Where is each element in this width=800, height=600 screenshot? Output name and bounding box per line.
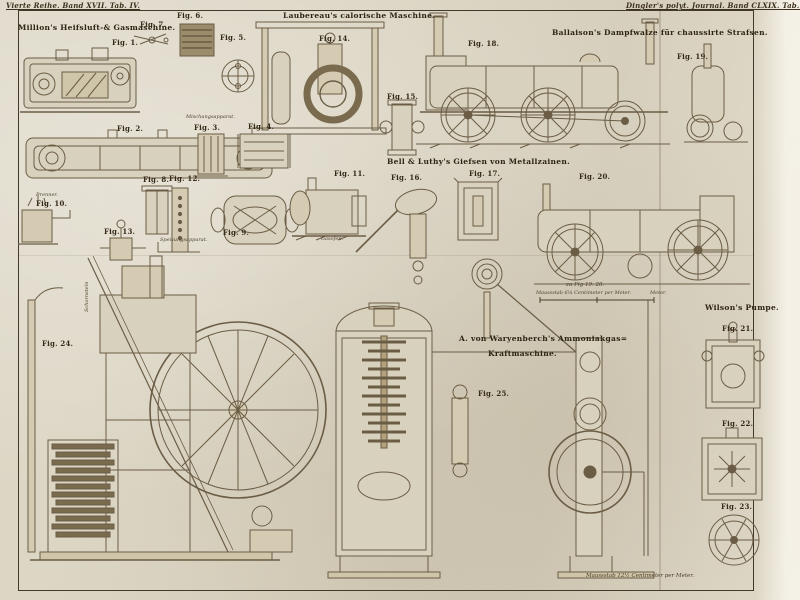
fig2-engine-section-drawing [26,130,272,178]
figure-label-20: Fig. 20. [579,172,610,181]
title-ammonia-line2: Kraftmaschine. [488,349,557,358]
figure-label-8: Fig. 8. [143,175,169,184]
caption-meter-label: Meter. [650,290,666,296]
figure-label-24: Fig. 24. [42,339,73,348]
caption-scale-bottom: Maassstab 12½ Centimeter per Meter. [586,573,694,579]
figure-label-10: Fig. 10. [36,199,67,208]
fig16-casting-ladle-drawing [356,185,439,284]
figure-label-9: Fig. 9. [223,228,249,237]
caption-scale-small: Maassstab 6¼ Centimeter per Meter. [536,290,631,296]
scale-bar-fig19-20 [540,297,654,303]
fig25-ammonia-machine-drawing [328,259,654,578]
figure-label-21: Fig. 21. [722,324,753,333]
title-bell: Bell & Luthy's Giefsen von Metallzainen. [387,157,570,166]
fig20-road-roller-drawing [534,184,750,284]
fig21-wilson-pump-drawing [702,322,764,408]
fig1-gas-engine-drawing [20,48,140,112]
figure-label-18: Fig. 18. [468,39,499,48]
fig8-vertical-device-drawing [142,186,172,234]
figure-label-16: Fig. 16. [391,173,422,182]
figure-label-2: Fig. 2. [117,124,143,133]
figure-label-15: Fig. 15. [387,92,418,101]
engraving-plate: Vierte Reihe. Band XVII. Tab. IV. Dingle… [0,0,800,600]
figure-label-14: Fig. 14. [319,34,350,43]
figure-label-7: Fig. 7. [140,20,166,29]
fig3-mixing-apparatus-drawing [194,134,228,176]
fig24-flywheel-engine-drawing [28,256,326,560]
figure-label-1: Fig. 1. [112,38,138,47]
title-ballaison: Ballaison's Dampfwalze für chaussirte St… [552,28,768,37]
figure-label-6: Fig. 6. [177,11,203,20]
figure-label-22: Fig. 22. [722,419,753,428]
fig5-gauge-drawing [222,60,254,92]
fig17-mould-box-drawing [454,178,502,240]
figure-label-23: Fig. 23. [721,502,752,511]
caption-schornstein: Schornstein [84,282,90,312]
title-wilson: Wilson's Pumpe. [705,303,779,312]
figure-label-11: Fig. 11. [334,169,365,178]
caption-zu-fig-19-20: zu Fig 19. 20. [566,282,604,288]
machine-drawings [0,0,800,600]
caption-speisungsapparat: Speisungsapparat. [160,237,207,243]
figure-label-5: Fig. 5. [220,33,246,42]
figure-label-4: Fig. 4. [248,122,274,131]
fig11-gas-furnace-drawing [290,178,366,240]
fig7-linkage-drawing [134,34,168,44]
figure-label-13: Fig. 13. [104,227,135,236]
fig23-rotor-drawing [709,515,759,565]
fig15-valve-column-drawing [380,100,424,155]
figure-label-19: Fig. 19. [677,52,708,61]
fig6-valve-block-drawing [180,24,214,56]
caption-gasofen: Gasofen. [321,236,343,242]
fig22-fan-chamber-drawing [702,428,762,500]
fig13-valve-drawing [100,220,146,260]
figure-label-17: Fig. 17. [469,169,500,178]
fig4-cylinder-detail-drawing [238,134,290,168]
title-ammonia-line1: A. von Waryenberch's Ammoniakgas= [459,334,627,343]
figure-label-25: Fig. 25. [478,389,509,398]
figure-label-3: Fig. 3. [194,123,220,132]
figure-label-12: Fig. 12. [169,174,200,183]
title-laubereau: Laubereau's calorische Maschine. [283,11,435,20]
caption-mischungsapparat: Mischungsapparat. [186,114,235,120]
caption-brenner: Brenner. [36,192,58,198]
